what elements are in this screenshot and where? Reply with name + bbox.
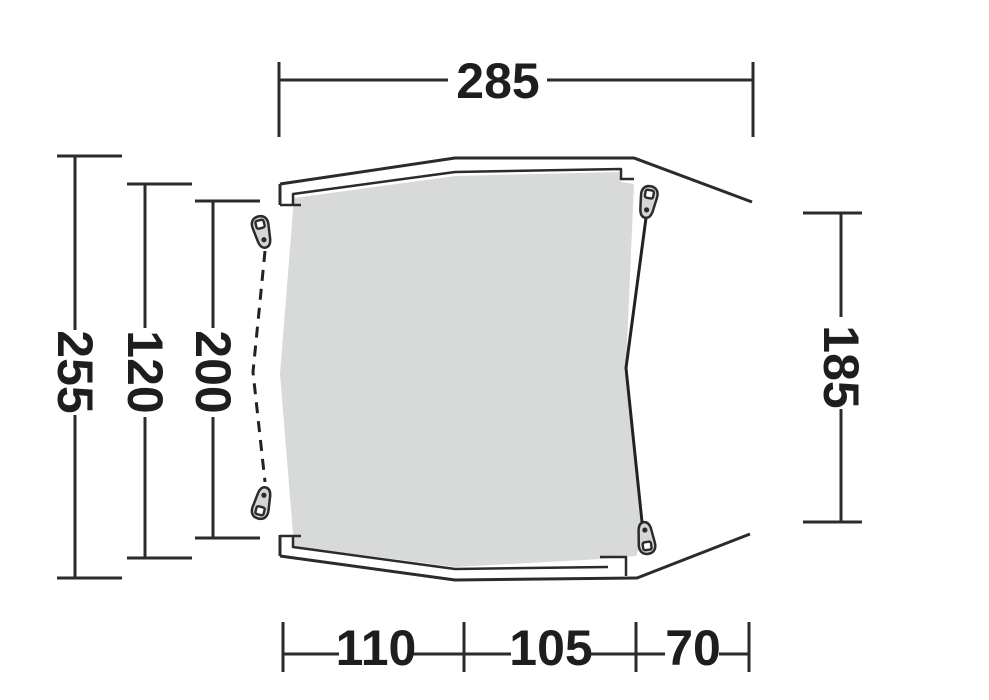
dim-bottom-sections: 110 105 70 bbox=[283, 620, 749, 676]
dim-bottom-section-right-label: 70 bbox=[665, 620, 721, 676]
zipper-pull-hole bbox=[255, 506, 265, 516]
dim-bottom-section-middle-label: 105 bbox=[509, 620, 592, 676]
dim-bottom-section-left-label: 110 bbox=[336, 620, 417, 676]
door-zip-dashed-line bbox=[253, 251, 265, 482]
dim-left-middle-depth-label: 120 bbox=[117, 330, 173, 413]
dim-right-depth: 185 bbox=[803, 213, 869, 522]
tent-floorplan-diagram: 285 255 120 200 185 110 105 70 bbox=[0, 0, 989, 700]
zipper-pull-hole bbox=[255, 219, 265, 229]
dim-top-width: 285 bbox=[279, 53, 753, 137]
zipper-pull-bottom-right-icon bbox=[636, 521, 657, 555]
floorplan-canvas: 285 255 120 200 185 110 105 70 bbox=[0, 0, 989, 700]
dim-left-inner-depth: 200 bbox=[185, 201, 260, 538]
zipper-pull-hole bbox=[645, 189, 655, 198]
zipper-pull-bottom-left-icon bbox=[250, 485, 274, 520]
dim-left-outer-depth: 255 bbox=[47, 156, 122, 578]
dim-left-inner-depth-label: 200 bbox=[185, 330, 241, 413]
dim-right-depth-label: 185 bbox=[813, 325, 869, 408]
floor-area bbox=[280, 172, 642, 567]
dim-left-outer-depth-label: 255 bbox=[47, 330, 103, 413]
zipper-pull-hole bbox=[642, 541, 651, 550]
dim-top-width-label: 285 bbox=[456, 53, 539, 109]
dim-left-middle-depth: 120 bbox=[117, 184, 192, 558]
zipper-pull-top-right-icon bbox=[637, 185, 659, 219]
zipper-pull-top-left-icon bbox=[250, 214, 274, 249]
